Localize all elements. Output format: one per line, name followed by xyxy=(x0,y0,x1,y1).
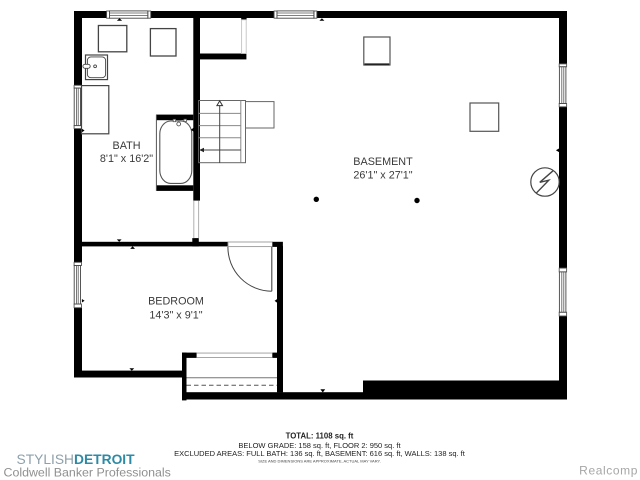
svg-text:EXCLUDED AREAS: FULL BATH: 136: EXCLUDED AREAS: FULL BATH: 136 sq. ft, B… xyxy=(174,449,466,458)
svg-text:Realcomp: Realcomp xyxy=(579,464,638,478)
svg-text:BATH: BATH xyxy=(113,140,141,152)
svg-text:26'1" x 27'1": 26'1" x 27'1" xyxy=(353,170,412,182)
svg-text:SIZE AND DIMENSIONS ARE APPROX: SIZE AND DIMENSIONS ARE APPROXIMATE, ACT… xyxy=(258,459,381,464)
svg-text:Coldwell Banker Professionals: Coldwell Banker Professionals xyxy=(4,466,171,480)
svg-text:BEDROOM: BEDROOM xyxy=(148,296,204,308)
svg-text:14'3" x 9'1": 14'3" x 9'1" xyxy=(149,310,202,322)
svg-text:TOTAL: 1108 sq. ft: TOTAL: 1108 sq. ft xyxy=(286,432,354,441)
svg-text:BASEMENT: BASEMENT xyxy=(353,156,413,168)
svg-text:8'1" x 16'2": 8'1" x 16'2" xyxy=(100,153,153,165)
